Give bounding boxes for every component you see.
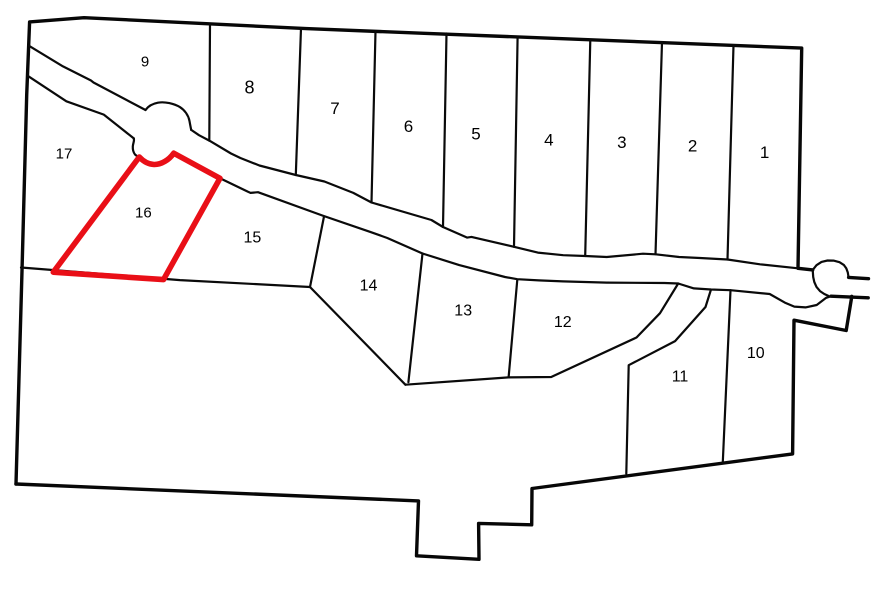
svg-text:17: 17 [56,146,73,163]
svg-text:8: 8 [244,78,254,98]
svg-text:4: 4 [544,131,553,150]
svg-text:1: 1 [760,143,769,162]
svg-text:3: 3 [617,133,626,152]
svg-text:12: 12 [554,314,572,331]
svg-text:11: 11 [672,369,689,386]
svg-text:2: 2 [688,136,697,155]
svg-text:15: 15 [244,229,262,246]
svg-text:13: 13 [454,303,472,320]
svg-text:6: 6 [404,117,413,136]
svg-text:5: 5 [471,125,480,144]
svg-text:16: 16 [135,205,152,222]
svg-text:14: 14 [360,277,378,294]
svg-text:9: 9 [141,54,149,71]
svg-text:7: 7 [330,99,339,118]
svg-text:10: 10 [747,345,765,362]
